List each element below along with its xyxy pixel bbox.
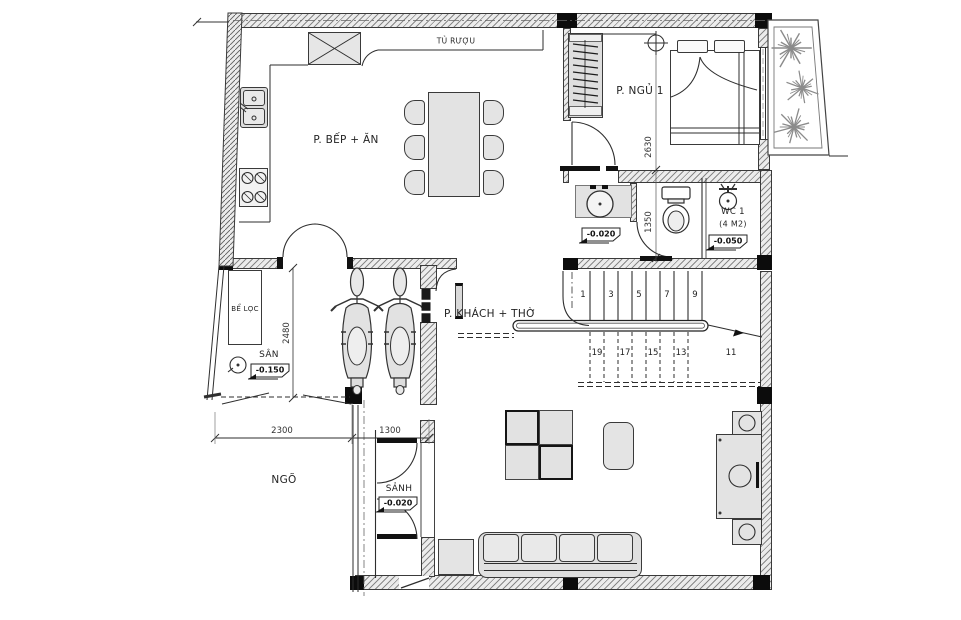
wall-top bbox=[230, 13, 770, 28]
dining-chair bbox=[483, 170, 504, 195]
room-label-bedroom: P. NGỦ 1 bbox=[616, 85, 663, 97]
balcony-plant bbox=[772, 30, 812, 67]
dining-chair bbox=[404, 135, 425, 160]
wall-hall-right-bottom bbox=[421, 537, 435, 577]
sink-basin bbox=[243, 108, 265, 125]
wall-left-kitchen bbox=[219, 13, 242, 266]
wall-kitchen-bottom-right bbox=[347, 258, 457, 269]
column bbox=[228, 13, 242, 28]
stair-number: 13 bbox=[676, 348, 687, 358]
room-label-living: P. KHÁCH + THỜ bbox=[444, 308, 536, 320]
column bbox=[345, 387, 362, 404]
room-label-wc: WC 1 bbox=[721, 207, 745, 217]
level-wc1: -0.050 bbox=[714, 237, 743, 246]
level-mark bbox=[248, 228, 747, 512]
dim-yard-depth: 2480 bbox=[282, 320, 292, 346]
dining-chair bbox=[483, 135, 504, 160]
dining-chair bbox=[404, 170, 425, 195]
kitchen-double-door bbox=[277, 224, 353, 269]
kitchen-stove bbox=[239, 168, 268, 207]
column bbox=[755, 13, 772, 28]
wardrobe-cap bbox=[569, 34, 602, 42]
dim-bedroom-depth: 2630 bbox=[644, 134, 654, 160]
sofa-cushion bbox=[483, 534, 519, 562]
room-label-wc-area: (4 M2) bbox=[719, 220, 747, 229]
altar-cabinet-top bbox=[732, 411, 762, 435]
dim-alley-width: 2300 bbox=[269, 426, 295, 436]
column bbox=[757, 387, 772, 404]
stair-number: 9 bbox=[692, 290, 697, 300]
stair-number: 3 bbox=[608, 290, 613, 300]
sink-basin bbox=[243, 90, 265, 106]
motorbike bbox=[374, 268, 426, 395]
stair-number: 7 bbox=[664, 290, 669, 300]
bed bbox=[670, 50, 760, 145]
room-label-hall: SẢNH bbox=[386, 484, 413, 494]
wardrobe-cap bbox=[569, 106, 602, 116]
balcony bbox=[761, 20, 849, 156]
wall-wc-top bbox=[618, 170, 772, 183]
stair-number: 5 bbox=[636, 290, 641, 300]
kitchen-cabinet-x-box bbox=[308, 32, 361, 65]
dining-chair bbox=[404, 100, 425, 125]
floor-plan: P. BẾP + ĂN P. NGỦ 1 P. KHÁCH + THỜ NGÕ … bbox=[0, 0, 961, 620]
ottoman bbox=[603, 422, 634, 470]
altar-cabinet-bottom bbox=[732, 519, 762, 545]
shower-head bbox=[719, 184, 737, 210]
level-yard: -0.150 bbox=[256, 366, 285, 375]
sofa-cushion bbox=[521, 534, 557, 562]
label-filter-tank: BỂ LỌC bbox=[231, 305, 259, 313]
bedroom-door bbox=[560, 122, 618, 171]
room-label-yard: SÂN bbox=[259, 350, 279, 360]
balcony-plant bbox=[781, 68, 824, 109]
motorbike bbox=[331, 268, 383, 395]
wall-hall-right-top bbox=[420, 420, 435, 443]
level-wc-lobby: -0.020 bbox=[587, 230, 616, 239]
floor-drain bbox=[228, 357, 246, 373]
column bbox=[757, 255, 772, 270]
washbasin-counter bbox=[575, 185, 632, 218]
coffee-table-quad bbox=[505, 445, 539, 480]
sofa-cushion bbox=[559, 534, 595, 562]
altar-cabinet-main bbox=[716, 434, 762, 519]
column bbox=[557, 13, 577, 28]
column bbox=[563, 258, 578, 270]
wall-wc-right bbox=[760, 170, 772, 256]
wall-balcony-top-seg bbox=[758, 28, 770, 48]
alley-dim-line bbox=[211, 403, 433, 444]
staircase bbox=[458, 271, 762, 387]
toilet bbox=[662, 187, 690, 233]
side-table bbox=[438, 539, 474, 575]
label-wine-cabinet: TỦ RƯỢU bbox=[437, 37, 476, 46]
dim-wc-depth: 1350 bbox=[644, 209, 654, 235]
pillow bbox=[677, 40, 708, 53]
dining-table bbox=[428, 92, 480, 197]
room-label-alley: NGÕ bbox=[271, 474, 296, 486]
column bbox=[350, 576, 364, 590]
stair-number: 15 bbox=[648, 348, 659, 358]
stair-number: 17 bbox=[620, 348, 631, 358]
wall-living-left-upper bbox=[420, 265, 437, 289]
stair-number: 19 bbox=[592, 348, 603, 358]
room-label-kitchen: P. BẾP + ĂN bbox=[313, 134, 378, 146]
balcony-plant bbox=[769, 102, 820, 153]
stair-number: 1 bbox=[580, 290, 585, 300]
wall-living-left-lower bbox=[420, 322, 437, 405]
wall-wc-bottom bbox=[563, 258, 772, 269]
coffee-table-quad bbox=[539, 445, 573, 480]
coffee-table-quad bbox=[505, 410, 539, 445]
dim-hall-width: 1300 bbox=[377, 426, 403, 436]
column bbox=[753, 575, 770, 590]
wall-wc-top-stub bbox=[563, 170, 569, 183]
pillow bbox=[714, 40, 745, 53]
dining-chair bbox=[483, 100, 504, 125]
sofa-cushion bbox=[597, 534, 633, 562]
column bbox=[219, 258, 233, 270]
level-hall: -0.020 bbox=[384, 499, 413, 508]
coffee-table-quad bbox=[539, 410, 573, 445]
stair-number: 11 bbox=[726, 348, 737, 358]
